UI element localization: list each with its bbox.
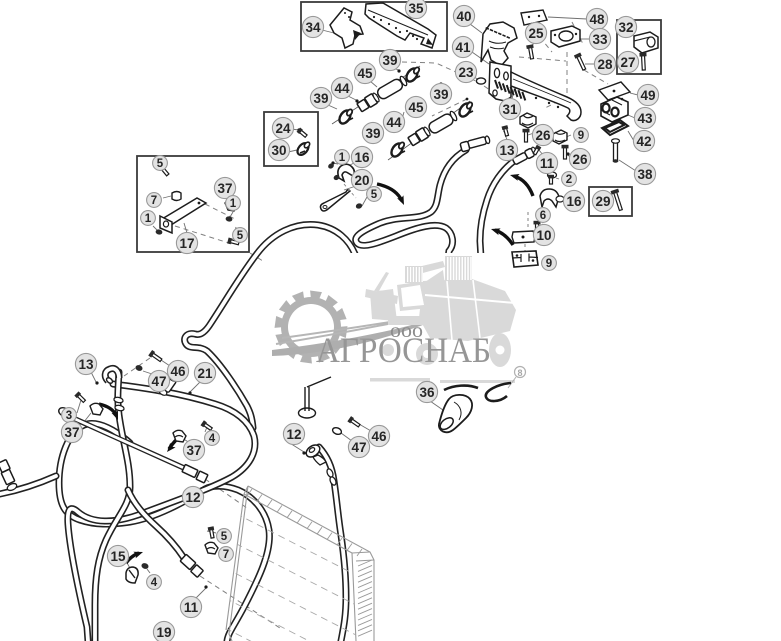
svg-text:34: 34 — [305, 20, 321, 35]
svg-text:20: 20 — [354, 173, 369, 188]
svg-text:АГРОСНАБ: АГРОСНАБ — [316, 330, 491, 370]
svg-text:11: 11 — [184, 600, 199, 615]
svg-text:1: 1 — [339, 152, 346, 164]
svg-text:31: 31 — [502, 102, 518, 117]
svg-text:5: 5 — [157, 158, 164, 170]
svg-text:42: 42 — [636, 134, 651, 149]
svg-text:47: 47 — [351, 440, 366, 455]
svg-text:29: 29 — [595, 194, 610, 209]
svg-text:6: 6 — [540, 210, 546, 222]
svg-text:11: 11 — [540, 156, 555, 171]
svg-text:45: 45 — [357, 66, 373, 81]
svg-text:49: 49 — [640, 88, 655, 103]
svg-text:47: 47 — [151, 374, 166, 389]
svg-text:8: 8 — [517, 368, 522, 378]
svg-text:3: 3 — [66, 410, 72, 422]
svg-text:9: 9 — [546, 258, 552, 270]
svg-text:45: 45 — [408, 100, 424, 115]
svg-text:5: 5 — [221, 531, 228, 543]
svg-text:13: 13 — [78, 357, 94, 372]
svg-text:12: 12 — [185, 490, 200, 505]
svg-text:40: 40 — [456, 9, 471, 24]
svg-text:39: 39 — [313, 91, 328, 106]
svg-text:16: 16 — [354, 150, 370, 165]
svg-text:39: 39 — [382, 53, 397, 68]
svg-text:1: 1 — [145, 213, 152, 225]
svg-text:26: 26 — [572, 152, 588, 167]
svg-text:33: 33 — [592, 32, 608, 47]
svg-text:7: 7 — [223, 549, 229, 561]
svg-text:35: 35 — [408, 1, 424, 16]
svg-text:41: 41 — [455, 40, 471, 55]
svg-text:39: 39 — [365, 126, 380, 141]
svg-text:1: 1 — [230, 198, 237, 210]
svg-text:17: 17 — [179, 236, 194, 251]
svg-text:32: 32 — [618, 20, 633, 35]
svg-text:25: 25 — [528, 26, 544, 41]
svg-text:46: 46 — [371, 429, 387, 444]
svg-text:16: 16 — [566, 194, 582, 209]
svg-text:46: 46 — [170, 364, 186, 379]
svg-text:48: 48 — [589, 12, 605, 27]
svg-text:23: 23 — [458, 65, 474, 80]
svg-text:37: 37 — [64, 425, 79, 440]
svg-text:12: 12 — [286, 427, 301, 442]
svg-text:26: 26 — [535, 128, 551, 143]
svg-text:39: 39 — [433, 87, 448, 102]
svg-text:37: 37 — [217, 181, 232, 196]
svg-text:28: 28 — [597, 57, 613, 72]
svg-text:7: 7 — [151, 195, 157, 207]
svg-text:10: 10 — [536, 228, 551, 243]
svg-text:13: 13 — [499, 143, 515, 158]
svg-text:44: 44 — [386, 115, 402, 130]
svg-text:19: 19 — [156, 625, 171, 640]
svg-text:4: 4 — [151, 577, 158, 589]
svg-text:24: 24 — [275, 121, 291, 136]
svg-text:4: 4 — [209, 433, 216, 445]
svg-text:30: 30 — [271, 143, 286, 158]
svg-text:43: 43 — [637, 111, 653, 126]
svg-text:37: 37 — [186, 443, 201, 458]
svg-text:21: 21 — [197, 366, 213, 381]
svg-text:9: 9 — [578, 130, 584, 142]
svg-text:44: 44 — [334, 81, 350, 96]
svg-text:5: 5 — [237, 230, 244, 242]
svg-text:15: 15 — [110, 549, 126, 564]
svg-text:5: 5 — [371, 189, 378, 201]
svg-text:27: 27 — [620, 55, 635, 70]
svg-text:36: 36 — [419, 385, 435, 400]
svg-text:2: 2 — [566, 174, 572, 186]
svg-text:38: 38 — [637, 167, 653, 182]
